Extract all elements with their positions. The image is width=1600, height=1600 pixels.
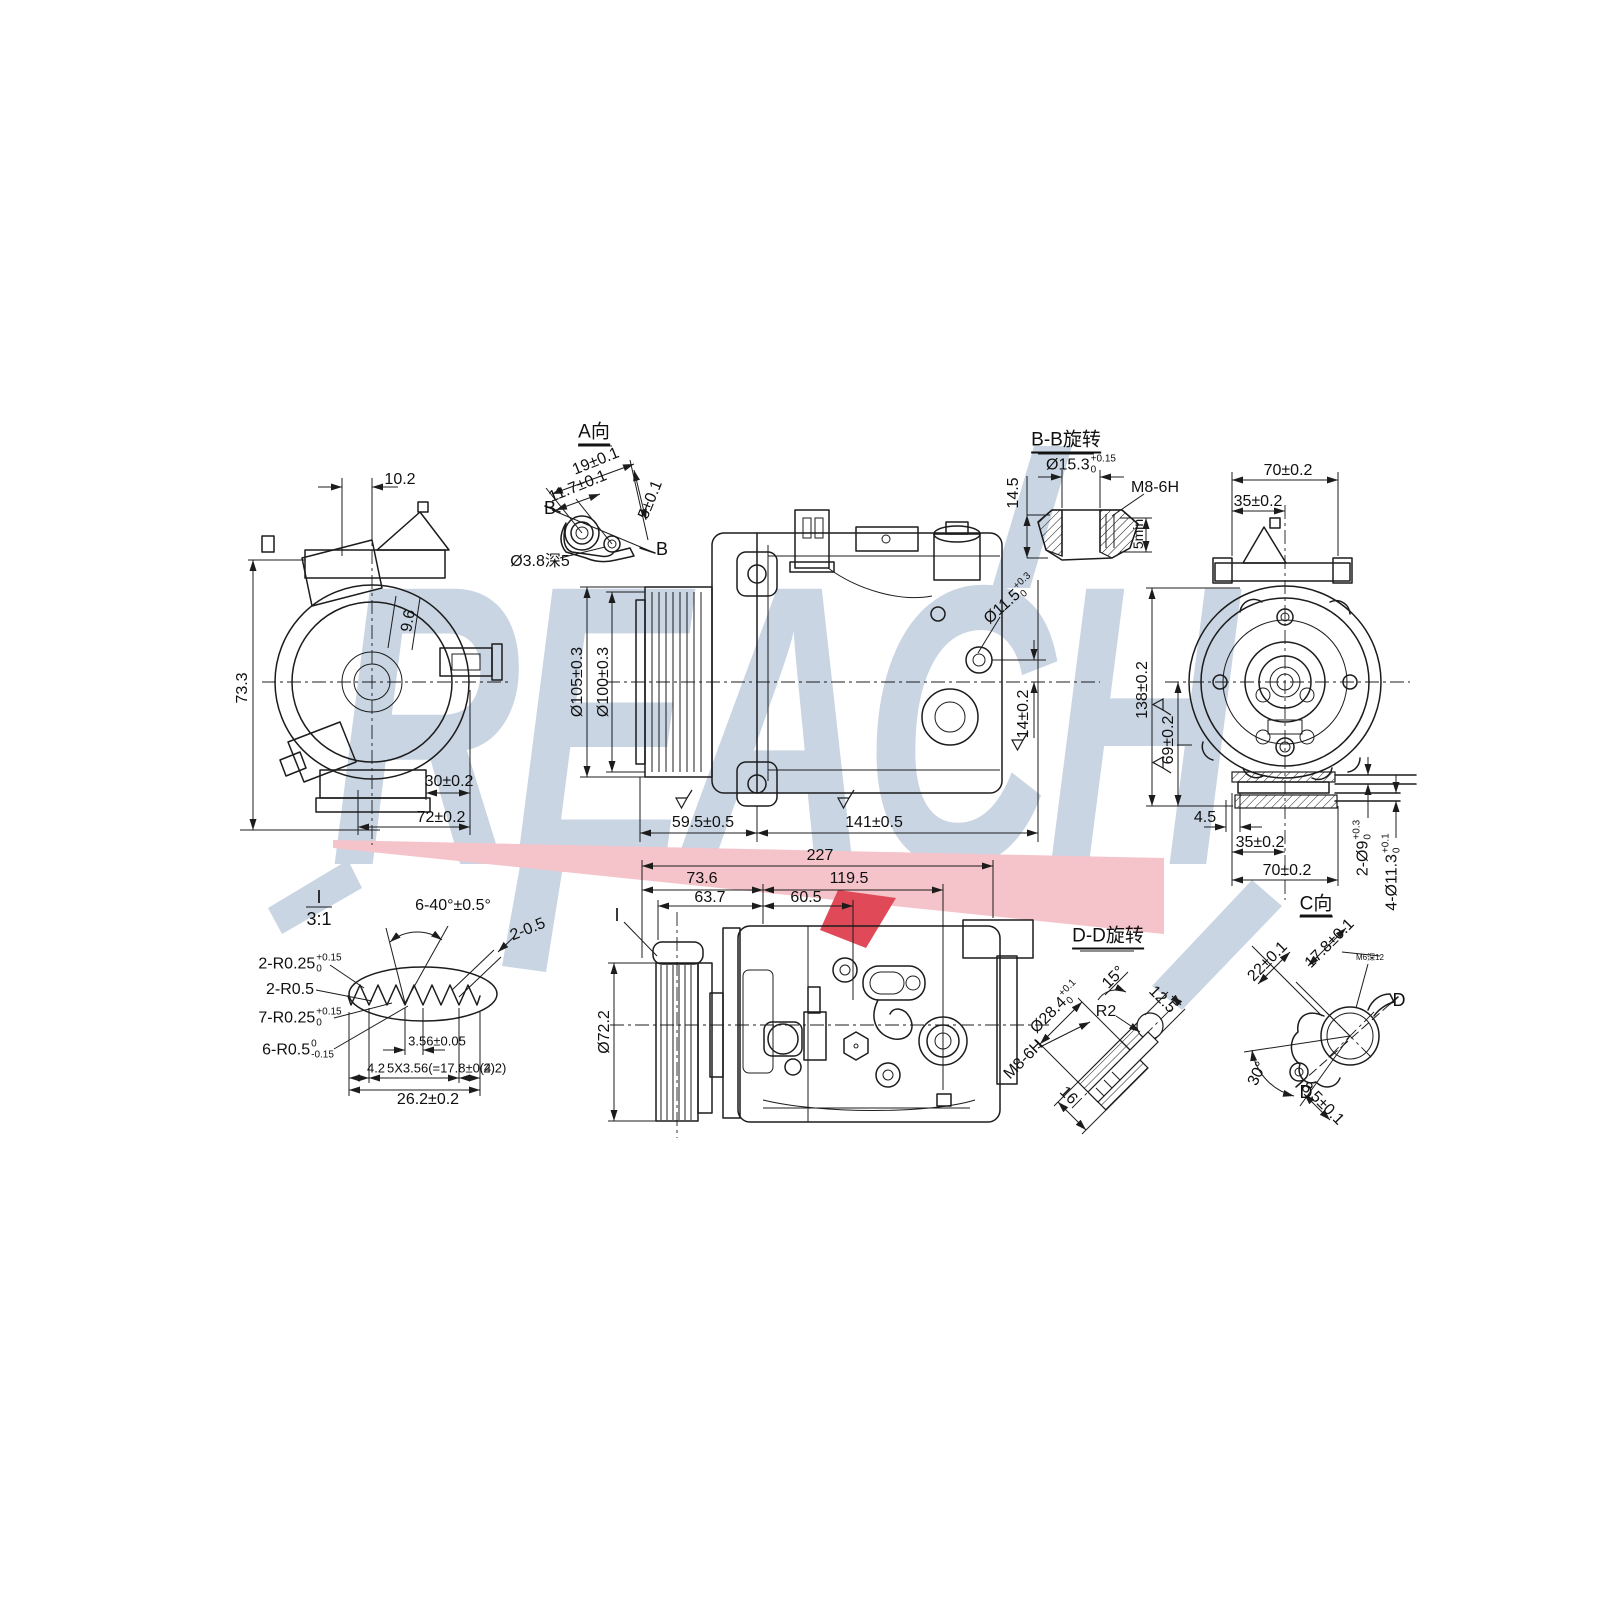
dim-rear-holes4: 4-Ø11.3 +0.10 (1382, 833, 1403, 910)
detail-i-reference: I (614, 906, 619, 924)
dim-front-len2: 141±0.5 (845, 815, 903, 831)
drawing-linework (0, 0, 1600, 1600)
dim-i-right: (4.2) (480, 1062, 507, 1075)
dim-front-len1: 59.5±0.5 (672, 815, 734, 831)
section-bb-label: B-B旋转 (1031, 431, 1101, 454)
view-c-label: C向 (1300, 895, 1333, 918)
dim-bottom-l4: 60.5 (790, 890, 821, 906)
section-letter-b1: B (544, 499, 556, 517)
dim-dd-radius: R2 (1096, 1004, 1116, 1020)
dim-i-r4: 6-R0.5 0-0.15 (262, 1040, 334, 1061)
dim-bb-depth: 5min (1131, 519, 1145, 549)
dim-i-r3: 7-R0.25 +0.150 (258, 1008, 341, 1029)
dim-i-r1: 2-R0.25 +0.150 (258, 954, 341, 975)
dim-bottom-l1: 73.6 (686, 871, 717, 887)
dim-bb-bore: Ø15.3 +0.150 (1046, 455, 1116, 476)
dim-pulley-od: Ø105±0.3 (570, 647, 586, 717)
dim-rear-foot-off: 4.5 (1194, 810, 1216, 826)
section-letter-d-top: D (1393, 991, 1406, 1009)
dim-i-left: 4.2 (367, 1062, 385, 1075)
dim-bb-thread: M8-6H (1131, 480, 1179, 496)
detail-i-scale: 3:1 (306, 910, 331, 928)
dim-bottom-total: 227 (807, 848, 834, 864)
dim-rear-bot-half: 35±0.2 (1236, 835, 1285, 851)
dim-bottom-l2: 119.5 (830, 871, 869, 887)
section-dd-label: D-D旋转 (1072, 927, 1144, 950)
dim-pulley-pd: Ø100±0.3 (596, 647, 612, 717)
dim-left-base: 72±0.2 (417, 810, 466, 826)
dim-i-r2: 2-R0.5 (266, 982, 314, 998)
front-view-geometry (580, 510, 1100, 842)
bottom-view-geometry (608, 860, 1090, 1138)
dim-bottom-l3: 63.7 (694, 890, 725, 906)
dim-i-total: 26.2±0.2 (397, 1092, 459, 1108)
dim-bottom-pulley: Ø72.2 (597, 1010, 613, 1054)
dim-left-foot: 30±0.2 (425, 774, 474, 790)
detail-i-number: I (316, 888, 321, 906)
dim-port-offset: 14±0.2 (1016, 690, 1032, 739)
dim-i-angle: 6-40°±0.5° (415, 898, 491, 914)
dim-rear-holes2: 2-Ø9 +0.30 (1353, 820, 1374, 876)
dim-c-small-note: M6深12 (1356, 954, 1384, 962)
dim-rear-height: 138±0.2 (1135, 661, 1151, 719)
dim-rear-top-w: 70±0.2 (1264, 463, 1313, 479)
engineering-drawing-page: REACH (0, 0, 1600, 1600)
dim-rear-bot-w: 70±0.2 (1263, 863, 1312, 879)
dim-i-pitch: 3.56±0.05 (408, 1035, 466, 1048)
dim-left-width-top: 10.2 (384, 472, 415, 488)
dim-rear-top-half: 35±0.2 (1234, 494, 1283, 510)
dim-left-height: 73.3 (235, 672, 251, 703)
dim-bb-height: 14.5 (1006, 477, 1022, 508)
dim-a-hole: Ø3.8深5 (510, 554, 570, 570)
view-a-label: A向 (578, 423, 610, 446)
section-letter-b2: B (656, 540, 668, 558)
dim-rear-half-h: 69±0.2 (1161, 716, 1177, 765)
